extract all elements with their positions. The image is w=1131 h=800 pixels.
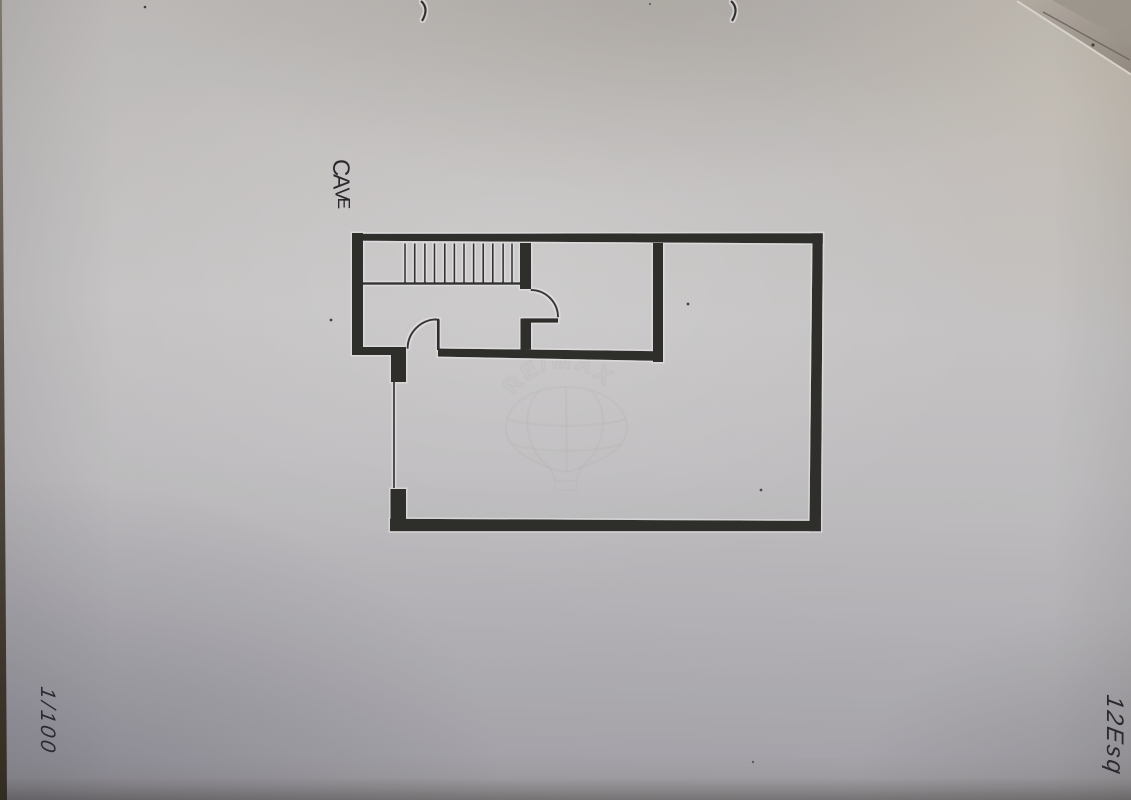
svg-text:12Esq: 12Esq [1101, 693, 1128, 778]
svg-text:A: A [329, 174, 355, 190]
svg-text:E: E [334, 198, 354, 210]
svg-text:RE/MAX: RE/MAX [497, 347, 620, 399]
svg-text:V: V [331, 188, 353, 202]
svg-text:C: C [327, 159, 354, 176]
svg-text:1/100: 1/100 [36, 685, 59, 757]
